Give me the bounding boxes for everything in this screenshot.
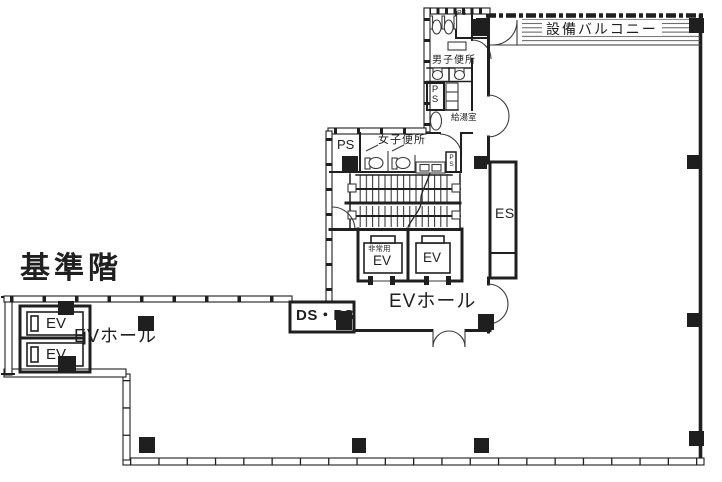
ds-ps-label: DS・PS <box>296 308 354 323</box>
mens-toilet-label: 男子便所 <box>432 56 476 66</box>
toilet-icon <box>455 71 465 80</box>
floor-plan-drawing <box>0 0 722 482</box>
ev-label-left-lower: EV <box>46 347 66 362</box>
ev-label-left-upper: EV <box>46 316 66 331</box>
ev-hall-label-center: EVホール <box>389 292 476 311</box>
toilet-icon <box>396 158 410 169</box>
handrail-post <box>452 184 460 192</box>
handrail-post <box>348 184 356 192</box>
es-label: ES <box>495 206 515 220</box>
urinal-icon <box>432 20 441 34</box>
floor-plan: 基準階 設備バルコニー PS 男子便所 PS 給湯室 PS 女子便所 PS ES… <box>0 0 722 482</box>
handrail-post <box>452 211 460 219</box>
kitchenette-label: 給湯室 <box>451 113 477 122</box>
center-elevators <box>330 229 462 285</box>
ps-room-label: PS <box>337 138 354 151</box>
balcony-label: 設備バルコニー <box>542 22 662 36</box>
emergency-ev-label: EV <box>373 254 391 268</box>
ev-hall-center-walls <box>354 278 508 347</box>
urinal-icon <box>444 20 453 34</box>
kitchen-sink-icon <box>431 112 442 130</box>
ps-duct-label-mens: PS <box>430 85 440 106</box>
sink-counter <box>448 42 466 50</box>
staircase <box>332 173 460 230</box>
toilet-icon <box>369 158 383 169</box>
ev-hall-label-left: EVホール <box>74 327 157 345</box>
outer-walls <box>2 16 704 465</box>
toilet-icon <box>433 71 443 80</box>
balcony-door-arc <box>493 21 517 45</box>
womens-toilet-label: 女子便所 <box>378 135 426 146</box>
emergency-ev-prefix-label: 非常用 <box>368 245 391 253</box>
corridor-east-wall <box>488 46 509 163</box>
ps-closet-label: PS <box>457 10 466 17</box>
floor-title: 基準階 <box>20 254 122 284</box>
ps-duct-label-womens: PS <box>448 154 456 168</box>
ev-label-center: EV <box>423 251 441 265</box>
